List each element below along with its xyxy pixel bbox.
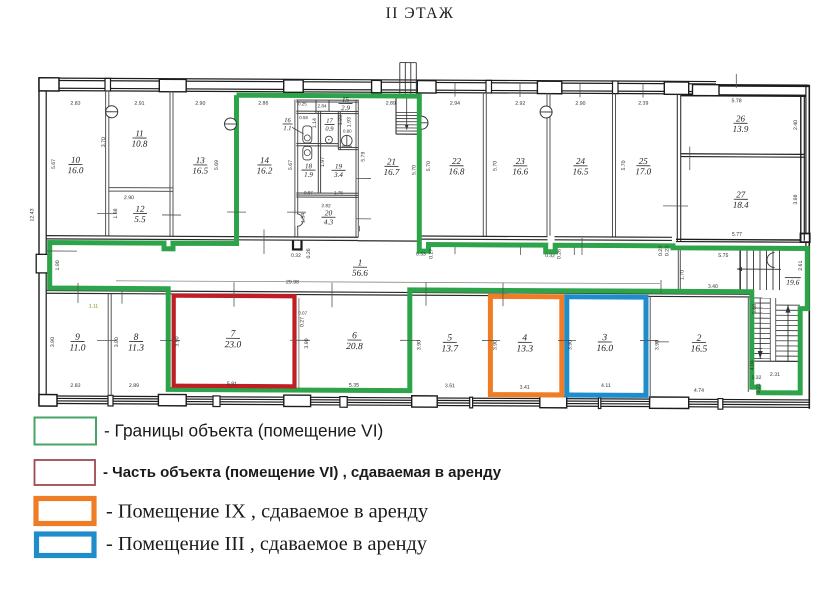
svg-text:3.90: 3.90 [50,337,56,347]
svg-text:13.7: 13.7 [441,344,459,354]
svg-text:0.9: 0.9 [325,126,334,133]
svg-text:0.80: 0.80 [343,129,352,134]
svg-text:16.8: 16.8 [449,166,465,176]
svg-text:24: 24 [576,156,585,166]
svg-text:3.51: 3.51 [445,383,455,389]
svg-text:0.25: 0.25 [298,101,307,106]
svg-text:2.39: 2.39 [638,101,648,107]
svg-text:5.68: 5.68 [752,304,758,314]
svg-text:5.67: 5.67 [51,159,57,169]
svg-text:3.90: 3.90 [654,340,660,350]
svg-text:3.90: 3.90 [568,340,574,350]
svg-text:16.5: 16.5 [192,165,208,175]
svg-text:16.7: 16.7 [384,167,400,177]
svg-text:20: 20 [325,208,333,217]
svg-text:16.0: 16.0 [68,165,84,175]
svg-text:4.74: 4.74 [694,388,704,394]
svg-text:5.77: 5.77 [732,232,742,238]
svg-text:5.70: 5.70 [493,161,499,171]
svg-text:2.94: 2.94 [450,101,460,107]
svg-text:16.0: 16.0 [596,344,613,354]
svg-text:5.70: 5.70 [621,160,627,170]
svg-text:19.6: 19.6 [786,278,799,287]
svg-text:16.5: 16.5 [573,166,589,176]
svg-text:29.98: 29.98 [286,279,299,285]
svg-text:2.91: 2.91 [134,101,144,107]
svg-text:18: 18 [305,162,312,170]
svg-text:1.97: 1.97 [320,157,326,167]
svg-text:0.23: 0.23 [756,383,762,393]
svg-text:5.5: 5.5 [134,214,146,224]
svg-text:0.23: 0.23 [664,246,670,256]
svg-text:3.90: 3.90 [493,340,499,350]
svg-text:2.82: 2.82 [321,203,331,209]
svg-text:0.32: 0.32 [545,253,555,259]
svg-text:5.78: 5.78 [732,98,742,104]
svg-text:11.3: 11.3 [128,343,144,353]
svg-text:1.90: 1.90 [55,260,61,270]
svg-text:3.70: 3.70 [101,137,107,147]
svg-text:16: 16 [284,117,291,124]
svg-text:1: 1 [358,257,362,267]
svg-text:25: 25 [639,156,648,166]
svg-text:21: 21 [387,157,396,167]
svg-text:2.90: 2.90 [124,195,134,201]
svg-text:2.86: 2.86 [258,101,268,107]
svg-text:0.07: 0.07 [298,311,307,316]
svg-text:11.0: 11.0 [70,343,86,353]
svg-text:2.31: 2.31 [770,372,780,378]
svg-text:- Помещение III , сдаваемое в: - Помещение III , сдаваемое в аренду [106,533,428,555]
svg-text:0.26: 0.26 [306,248,312,258]
svg-text:10: 10 [71,155,80,165]
svg-text:2.90: 2.90 [195,101,205,107]
svg-text:3.40: 3.40 [708,284,718,290]
svg-text:14: 14 [260,155,269,165]
svg-text:13.9: 13.9 [733,124,749,134]
svg-text:22: 22 [452,156,461,166]
svg-text:4.04: 4.04 [749,360,755,370]
svg-text:1.1: 1.1 [283,125,291,132]
svg-text:3.98: 3.98 [793,194,799,204]
svg-text:56.6: 56.6 [352,268,368,278]
svg-text:5.79: 5.79 [361,152,367,162]
svg-text:- Границы объекта (помещение V: - Границы объекта (помещение VI) [104,421,383,441]
svg-text:0.58: 0.58 [299,115,308,120]
svg-text:3.4: 3.4 [333,171,343,179]
svg-text:17.0: 17.0 [635,166,651,176]
svg-text:0.27: 0.27 [428,249,434,259]
svg-text:12: 12 [136,204,145,214]
svg-text:16.5: 16.5 [691,345,708,355]
svg-text:15: 15 [342,96,349,104]
svg-text:1.93: 1.93 [347,117,353,127]
svg-text:16.6: 16.6 [512,166,528,176]
svg-text:3.90: 3.90 [175,336,181,346]
svg-text:1.88: 1.88 [113,208,119,218]
svg-text:2.89: 2.89 [386,101,396,107]
svg-text:5.75: 5.75 [718,253,728,259]
svg-text:3.90: 3.90 [304,338,310,348]
svg-text:4.11: 4.11 [601,383,611,389]
svg-text:2.92: 2.92 [515,101,525,107]
svg-text:19: 19 [335,162,342,170]
svg-text:27: 27 [736,189,745,199]
svg-text:23: 23 [516,156,525,166]
svg-text:0.26: 0.26 [556,249,562,259]
svg-text:1.9: 1.9 [304,171,313,179]
svg-text:2.84: 2.84 [318,103,327,108]
svg-text:18.4: 18.4 [733,200,749,210]
svg-text:11: 11 [135,128,143,138]
svg-text:5.70: 5.70 [426,161,432,171]
svg-text:5.70: 5.70 [412,165,418,175]
svg-text:0.23: 0.23 [658,246,664,256]
svg-text:13: 13 [196,155,205,165]
svg-text:0.32: 0.32 [752,375,762,381]
svg-text:2.9: 2.9 [341,104,350,112]
svg-text:23.0: 23.0 [225,340,242,350]
svg-text:1.75: 1.75 [334,190,343,195]
svg-text:5.91: 5.91 [227,381,237,387]
svg-text:4.3: 4.3 [324,217,334,226]
svg-text:5.67: 5.67 [288,160,294,170]
svg-text:2.89: 2.89 [129,383,139,389]
svg-text:5.69: 5.69 [214,160,220,170]
svg-text:1.54: 1.54 [300,213,306,223]
svg-text:- Часть объекта (помещение VI): - Часть объекта (помещение VI) , сдаваем… [103,464,502,481]
svg-text:13.3: 13.3 [516,344,533,354]
svg-text:0.32: 0.32 [291,253,301,259]
svg-text:3.90: 3.90 [417,340,423,350]
svg-text:- Помещение IX , сдаваемое в а: - Помещение IX , сдаваемое в аренду [106,501,429,523]
svg-text:3.90: 3.90 [114,337,120,347]
svg-text:1.14: 1.14 [312,118,318,128]
svg-text:10.8: 10.8 [132,139,148,149]
svg-text:2.40: 2.40 [793,120,799,130]
svg-text:1.23: 1.23 [338,115,344,125]
svg-text:5.35: 5.35 [349,383,359,389]
svg-text:17: 17 [326,118,333,125]
svg-text:0.27: 0.27 [300,317,306,327]
svg-text:20.8: 20.8 [346,342,363,352]
svg-text:1.11: 1.11 [89,303,99,309]
svg-text:II ЭТАЖ: II ЭТАЖ [386,5,455,22]
svg-text:0.33: 0.33 [416,251,426,257]
svg-text:16.2: 16.2 [257,165,273,175]
svg-text:26: 26 [736,113,745,123]
svg-text:1.70: 1.70 [679,270,685,280]
svg-text:2.83: 2.83 [70,101,80,107]
svg-text:2.61: 2.61 [798,261,804,271]
svg-text:2.83: 2.83 [70,383,80,389]
svg-text:12.43: 12.43 [30,208,36,221]
svg-text:2.90: 2.90 [575,101,585,107]
svg-text:0.97: 0.97 [304,190,313,195]
svg-text:3.41: 3.41 [520,385,530,391]
